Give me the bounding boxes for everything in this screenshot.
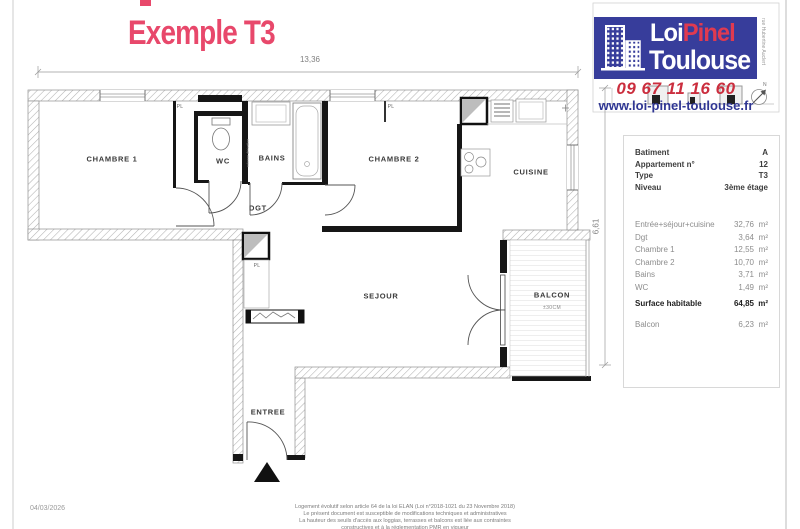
room-label-dgt: DGT <box>249 204 267 213</box>
logo-word-loi: Loi <box>650 19 683 47</box>
apartment-info-panel: BatimentA Appartement n°12 TypeT3 Niveau… <box>623 135 780 388</box>
area-row: Entrée+séjour+cuisine32,76m² <box>635 219 768 232</box>
logo-word-pinel: Pinel <box>683 19 735 47</box>
area-row: WC1,49m² <box>635 282 768 295</box>
room-label-balcon: BALCON <box>534 291 570 300</box>
street-name: rue Hubertine Auclert <box>760 18 766 65</box>
area-row: Chambre 210,70m² <box>635 257 768 270</box>
room-label-bains: BAINS <box>259 154 286 163</box>
room-label-entree: ENTREE <box>251 408 286 417</box>
ducts-and-closets <box>243 98 487 323</box>
entrance-arrow-icon <box>254 462 280 482</box>
balcony-note: ±30CM <box>543 305 561 311</box>
placard-label-3: PL <box>254 263 261 269</box>
logo-building-icon <box>597 22 649 74</box>
phone-number: 09 67 11 16 60 <box>592 79 760 99</box>
detail-row: TypeT3 <box>635 170 768 182</box>
website-link[interactable]: www.loi-pinel-toulouse.fr <box>584 98 768 113</box>
logo-brand-line1: LoiPinel <box>650 19 735 48</box>
placard-label-1: PL <box>177 104 184 110</box>
room-label-chambre1: CHAMBRE 1 <box>87 155 138 164</box>
detail-row: Niveau3ème étage <box>635 182 768 194</box>
page-title: Exemple T3 <box>128 14 275 53</box>
clipped-title-fragment <box>140 0 151 6</box>
placard-label-2: PL <box>388 104 395 110</box>
room-label-wc: WC <box>216 157 230 166</box>
doors <box>176 181 505 460</box>
balcony-area-row: Balcon6,23m² <box>635 319 768 331</box>
floor-plan-sheet: Exemple T3 13,36 6,61 CHAMBRE 1 WC BAINS… <box>0 0 800 529</box>
logo-word-toulouse: Toulouse <box>649 45 750 76</box>
detail-row: Appartement n°12 <box>635 159 768 171</box>
legal-text: Logement évolutif selon article 64 de la… <box>240 504 570 529</box>
dimension-width: 13,36 <box>288 55 332 64</box>
detail-row: BatimentA <box>635 147 768 159</box>
total-area-row: Surface habitable64,85m² <box>635 297 768 311</box>
riser-label: colonne dérivation <box>246 139 250 167</box>
dimension-height: 6,61 <box>591 219 600 235</box>
logo: LoiPinel Toulouse <box>594 17 757 79</box>
room-label-sejour: SEJOUR <box>363 292 398 301</box>
area-row: Bains3,71m² <box>635 269 768 282</box>
area-row: Chambre 112,55m² <box>635 244 768 257</box>
compass-north-letter: N <box>763 82 767 88</box>
room-label-cuisine: CUISINE <box>513 168 548 177</box>
plan-date: 04/03/2026 <box>30 505 65 512</box>
area-row: Dgt3,64m² <box>635 232 768 245</box>
room-label-chambre2: CHAMBRE 2 <box>369 155 420 164</box>
